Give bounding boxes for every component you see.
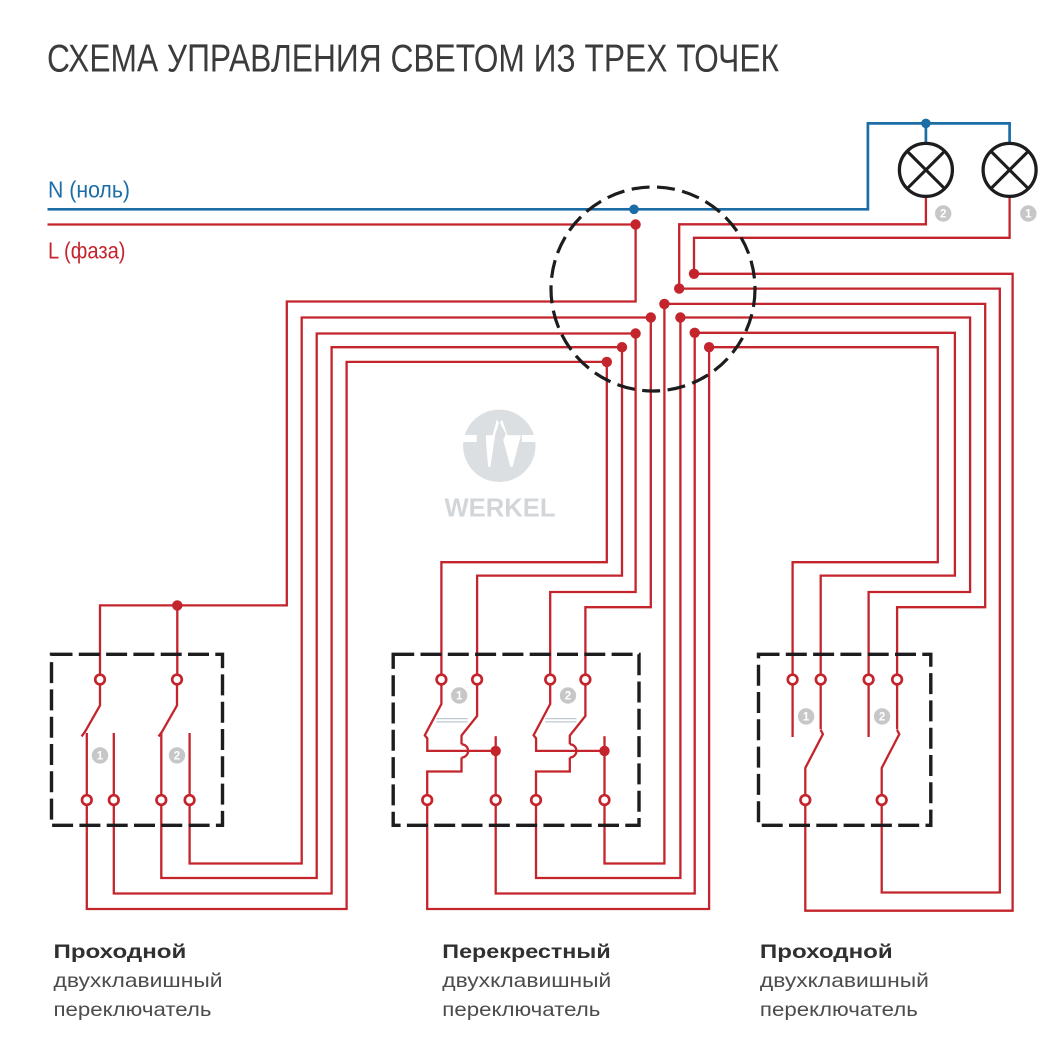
svg-text:2: 2 (879, 712, 885, 724)
svg-text:L (фаза): L (фаза) (48, 237, 126, 263)
svg-text:двухклавишный: двухклавишный (442, 970, 611, 992)
svg-text:двухклавишный: двухклавишный (54, 970, 223, 992)
svg-text:N (ноль): N (ноль) (48, 176, 130, 202)
svg-text:переключатель: переключатель (54, 999, 212, 1021)
svg-text:2: 2 (174, 751, 180, 763)
svg-text:СХЕМА УПРАВЛЕНИЯ СВЕТОМ ИЗ ТРЕ: СХЕМА УПРАВЛЕНИЯ СВЕТОМ ИЗ ТРЕХ ТОЧЕК (47, 38, 779, 81)
svg-text:1: 1 (1025, 209, 1032, 221)
svg-text:Проходной: Проходной (54, 941, 187, 963)
svg-text:1: 1 (97, 751, 104, 763)
svg-text:2: 2 (565, 691, 571, 703)
svg-text:Перекрестный: Перекрестный (442, 941, 610, 963)
svg-text:двухклавишный: двухклавишный (760, 970, 929, 992)
svg-text:1: 1 (803, 712, 810, 724)
svg-text:WERKEL: WERKEL (445, 493, 556, 523)
svg-text:переключатель: переключатель (760, 999, 918, 1021)
svg-text:1: 1 (456, 691, 463, 703)
svg-text:Проходной: Проходной (760, 941, 893, 963)
svg-text:2: 2 (940, 209, 946, 221)
svg-text:переключатель: переключатель (442, 999, 600, 1021)
